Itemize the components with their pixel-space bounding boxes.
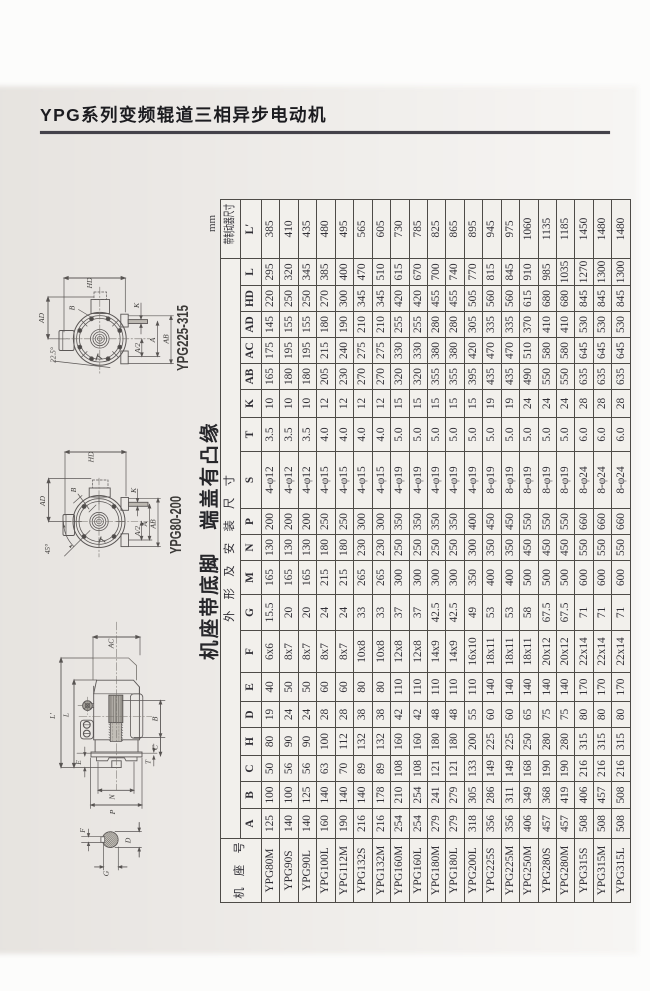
svg-text:L: L xyxy=(62,713,71,718)
svg-text:22.5°: 22.5° xyxy=(50,347,58,363)
svg-text:B: B xyxy=(151,716,160,721)
svg-text:AD: AD xyxy=(37,312,46,324)
svg-text:A/2: A/2 xyxy=(134,526,142,537)
svg-text:YPG225-315: YPG225-315 xyxy=(175,305,192,371)
svg-text:A: A xyxy=(148,337,157,343)
svg-text:C: C xyxy=(151,744,160,750)
svg-text:E: E xyxy=(74,760,83,766)
svg-text:B: B xyxy=(68,305,77,310)
svg-text:G: G xyxy=(102,870,111,876)
svg-text:45°: 45° xyxy=(44,544,52,554)
svg-text:AB: AB xyxy=(149,519,158,530)
svg-text:T: T xyxy=(144,759,153,764)
svg-text:N: N xyxy=(108,794,117,801)
svg-text:HD: HD xyxy=(85,277,94,289)
svg-text:L′: L′ xyxy=(48,713,57,720)
svg-text:K: K xyxy=(132,302,141,309)
svg-text:D: D xyxy=(124,837,133,844)
svg-text:K: K xyxy=(129,487,138,494)
svg-text:B: B xyxy=(69,487,78,492)
svg-text:AB: AB xyxy=(161,334,170,345)
svg-text:A/2: A/2 xyxy=(134,343,142,354)
svg-text:F: F xyxy=(78,828,87,834)
svg-text:HD: HD xyxy=(87,451,96,463)
svg-text:YPG80-200: YPG80-200 xyxy=(168,496,185,554)
svg-text:AC: AC xyxy=(107,638,116,650)
svg-text:AD: AD xyxy=(38,495,47,507)
